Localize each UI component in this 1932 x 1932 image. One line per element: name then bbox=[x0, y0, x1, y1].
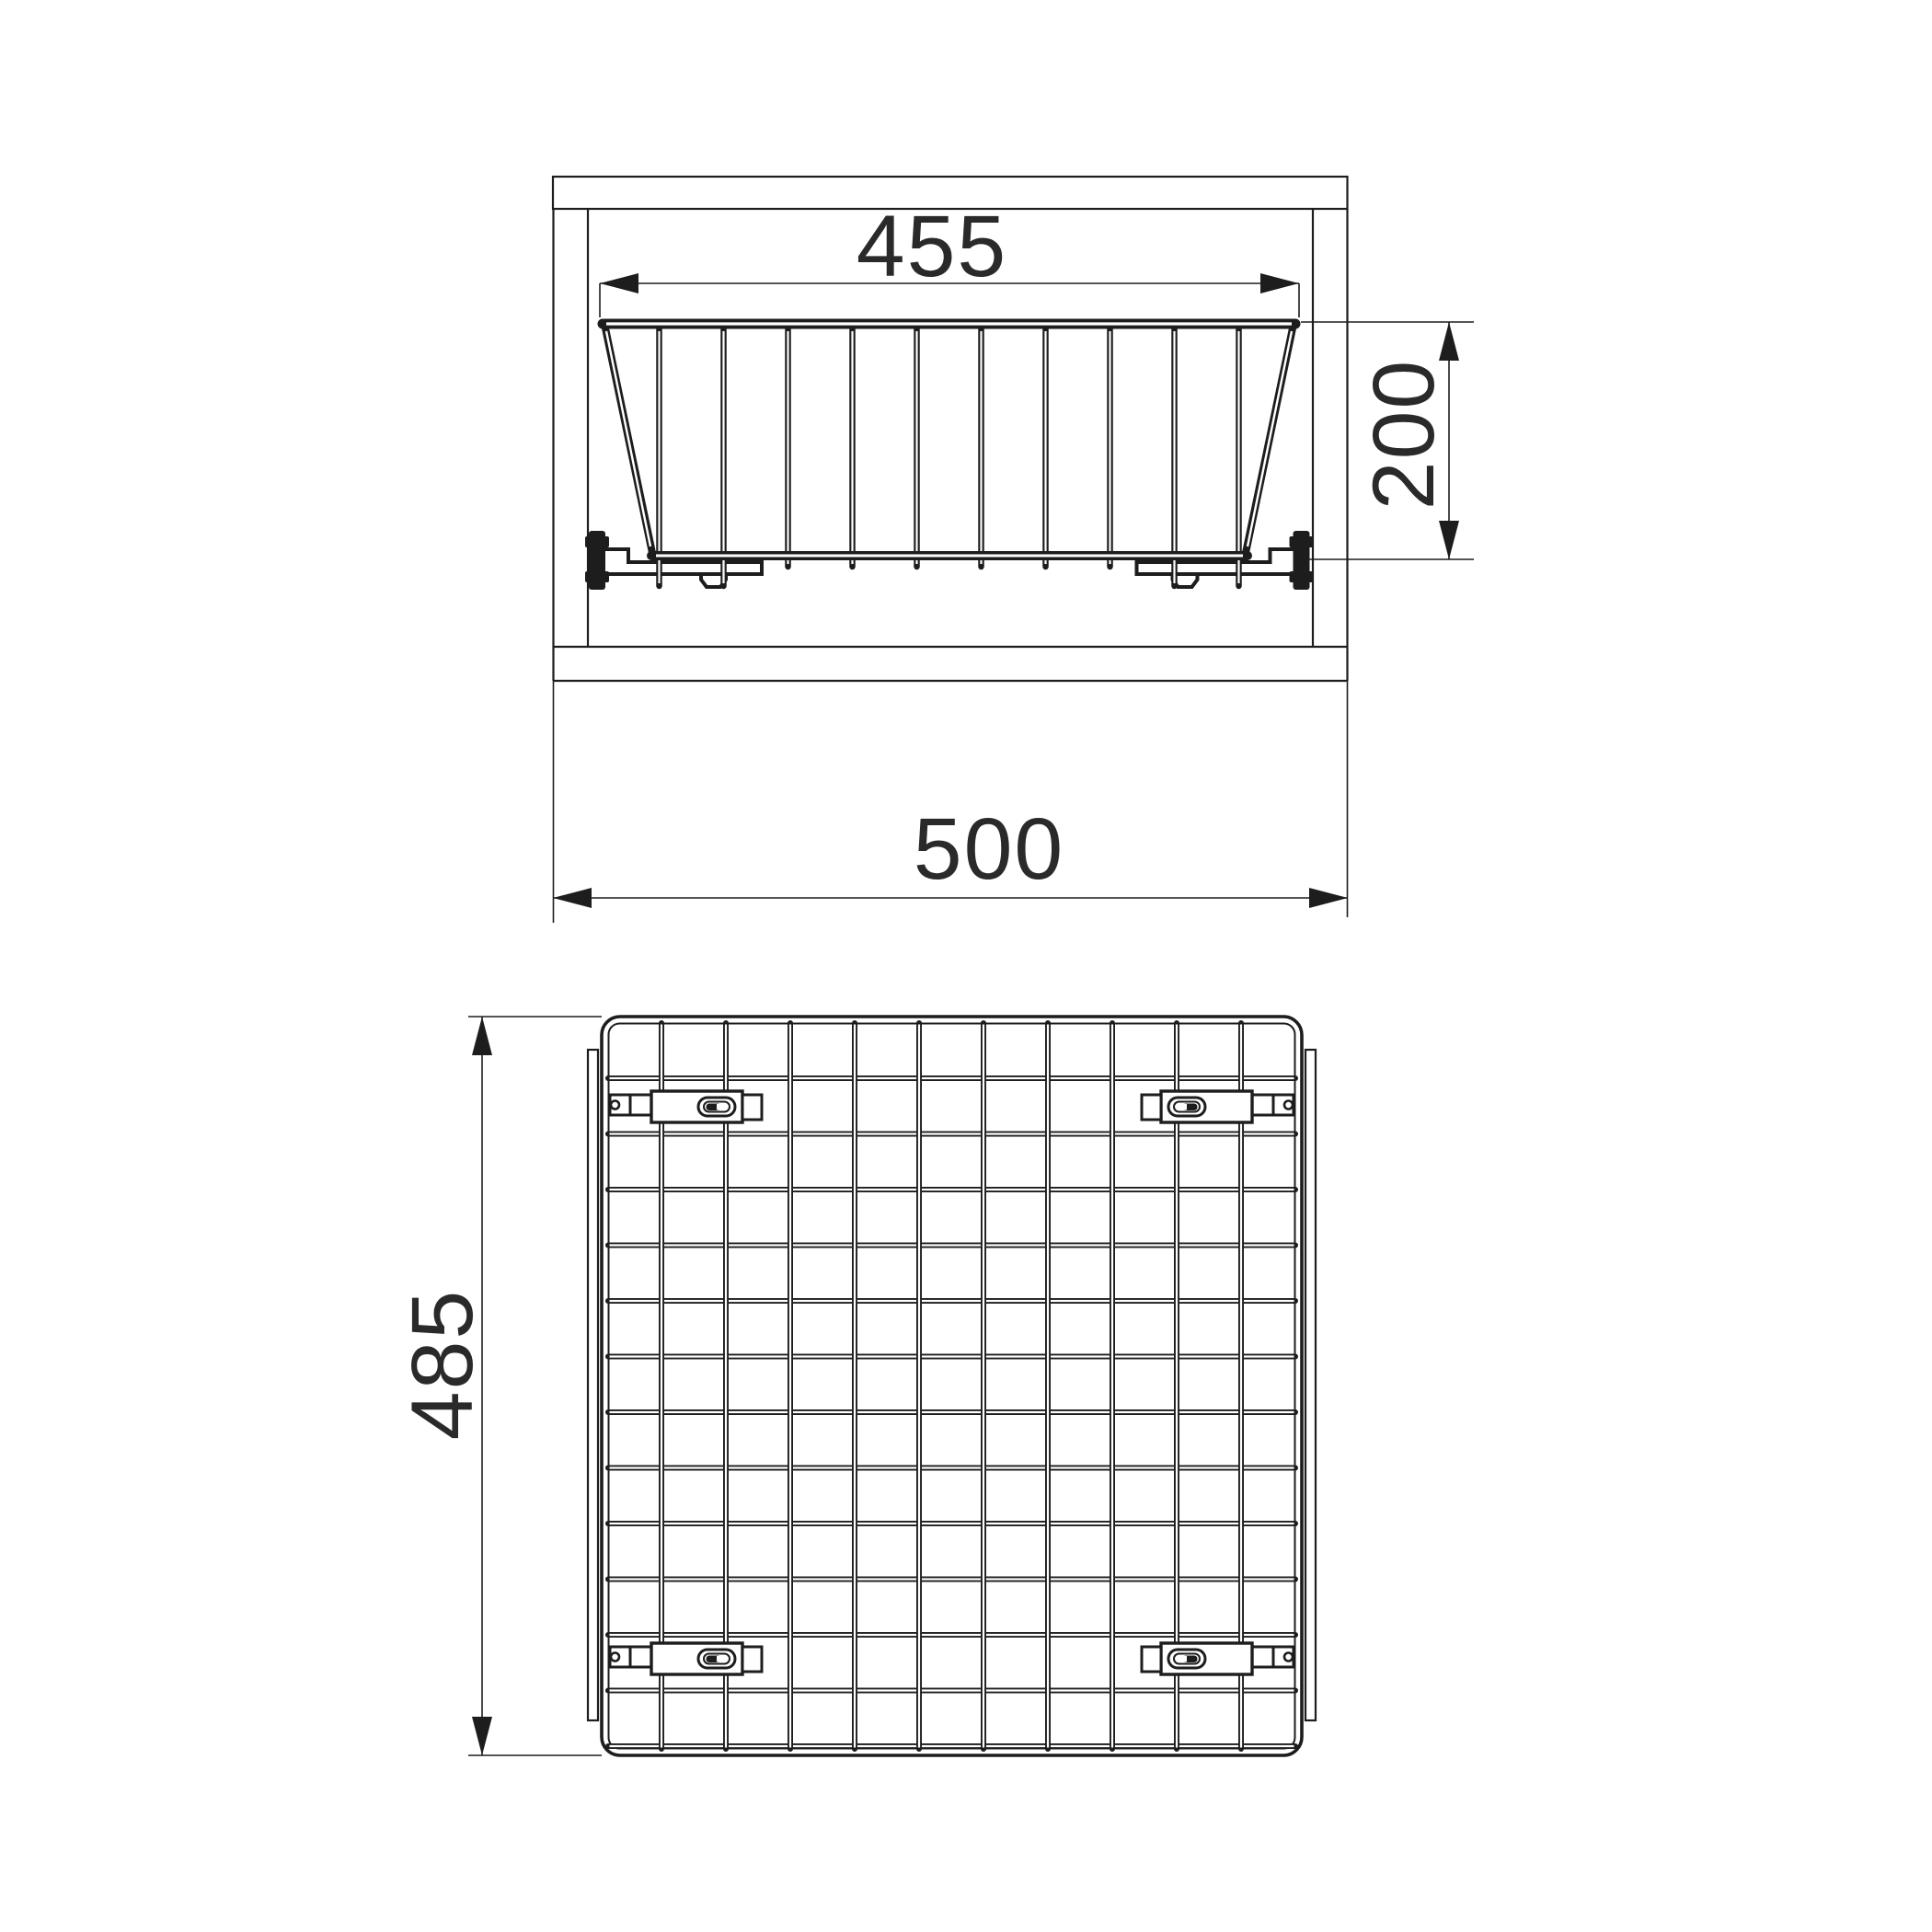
dim-label-basket-height: 200 bbox=[1355, 359, 1453, 511]
slide-rail-left bbox=[588, 1050, 598, 1720]
front-view: 455 200 500 bbox=[553, 177, 1474, 923]
basket-front-wires bbox=[660, 328, 1239, 586]
arrowhead-left-icon bbox=[553, 888, 592, 908]
dimension-basket-height: 200 bbox=[1295, 322, 1474, 559]
dimension-basket-top-width: 455 bbox=[600, 198, 1299, 317]
arrowhead-down-icon bbox=[1439, 521, 1459, 559]
basket-side-wire-right bbox=[1246, 324, 1294, 553]
basket-front bbox=[603, 324, 1295, 586]
slide-rail-right bbox=[1305, 1050, 1316, 1720]
arrowhead-right-icon bbox=[1309, 888, 1348, 908]
dim-label-basket-top-width: 455 bbox=[857, 198, 1008, 295]
arrowhead-left-icon bbox=[600, 273, 638, 293]
dim-label-cabinet-width: 500 bbox=[914, 800, 1065, 898]
arrowhead-up-icon bbox=[472, 1017, 492, 1055]
arrowhead-up-icon bbox=[1439, 322, 1459, 361]
arrowhead-down-icon bbox=[472, 1717, 492, 1755]
plan-view: 485 bbox=[394, 1017, 1316, 1755]
dimension-basket-depth: 485 bbox=[394, 1017, 602, 1755]
dim-label-basket-depth: 485 bbox=[394, 1289, 491, 1441]
dimension-cabinet-width: 500 bbox=[553, 800, 1348, 908]
technical-drawing-canvas: 455 200 500 bbox=[0, 0, 1932, 1932]
arrowhead-right-icon bbox=[1260, 273, 1299, 293]
drawing-page: 455 200 500 bbox=[0, 0, 1932, 1932]
basket-side-wire-left bbox=[604, 324, 652, 553]
